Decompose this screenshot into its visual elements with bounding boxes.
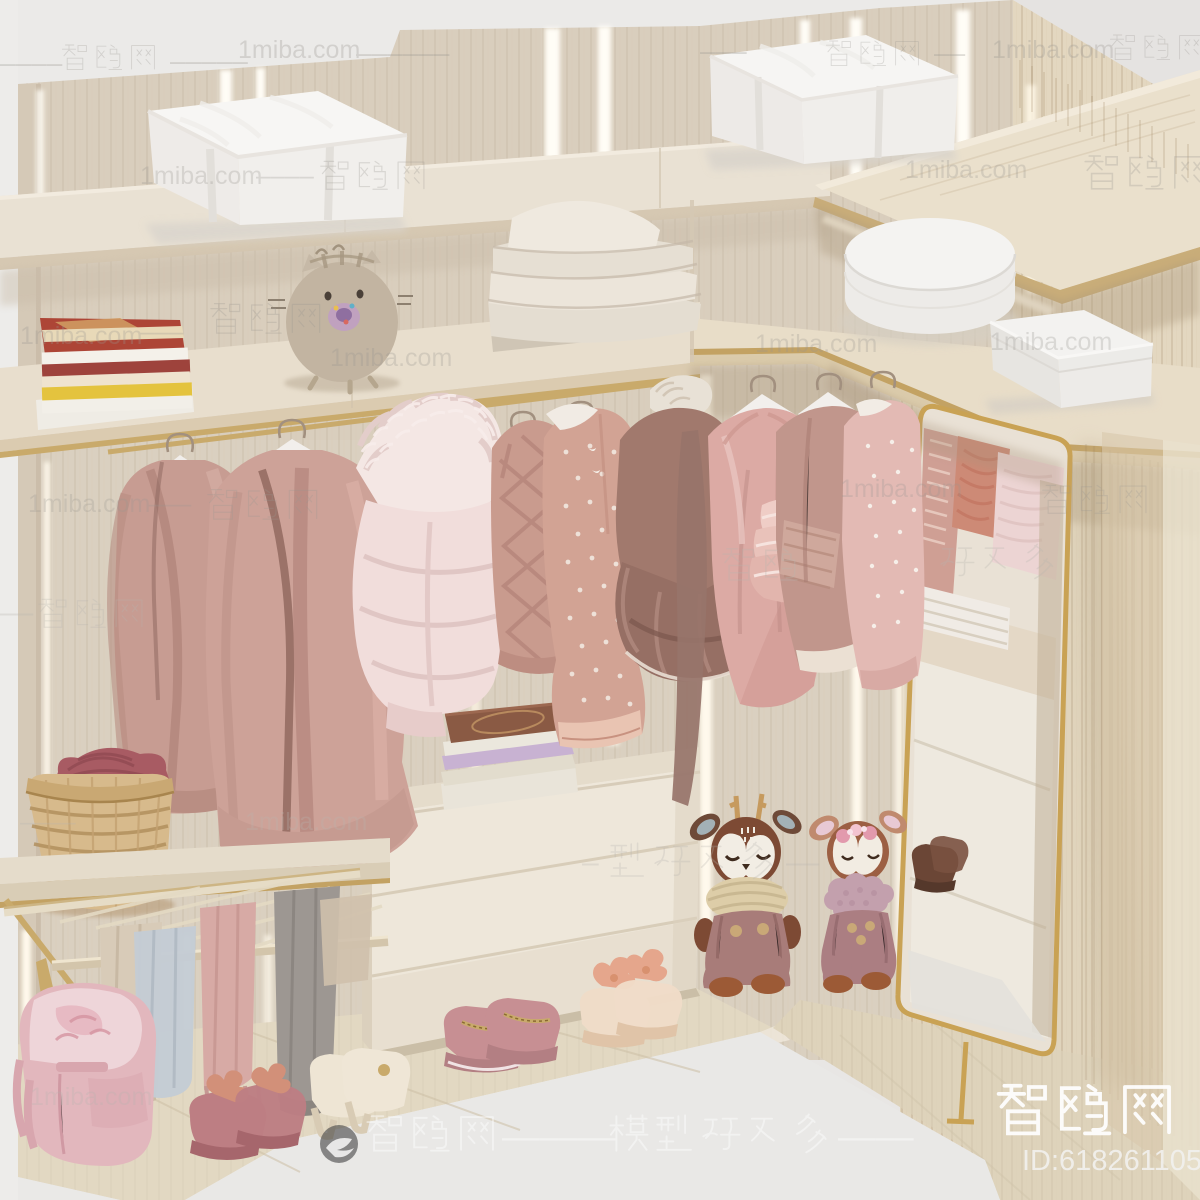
svg-text:1miba.com: 1miba.com [20, 322, 142, 350]
svg-text:1miba.com: 1miba.com [140, 162, 262, 190]
svg-text:–: – [582, 846, 599, 879]
svg-text:1miba.com: 1miba.com [330, 344, 452, 372]
svg-text:–––: ––– [700, 35, 747, 66]
svg-text:1miba.com: 1miba.com [28, 490, 150, 518]
svg-text:–––––: ––––– [170, 45, 248, 76]
svg-text:1miba.com: 1miba.com [755, 330, 877, 358]
svg-text:1miba.com: 1miba.com [30, 1083, 152, 1111]
svg-text:ID:618261105: ID:618261105 [1022, 1145, 1200, 1177]
svg-text:––––: –––– [20, 808, 76, 836]
svg-text:––––––: –––––– [356, 37, 450, 68]
svg-text:1miba.com: 1miba.com [905, 156, 1027, 184]
svg-text:––––––: –––––– [502, 1118, 616, 1156]
svg-text:1miba.com: 1miba.com [990, 328, 1112, 356]
svg-text:1miba.com: 1miba.com [245, 808, 367, 836]
svg-text:––––: –––– [838, 1118, 914, 1156]
svg-text:1miba.com: 1miba.com [238, 36, 360, 64]
svg-text:1miba.com: 1miba.com [992, 36, 1114, 64]
svg-text:––: –– [934, 37, 966, 68]
svg-text:––––: –––– [256, 160, 314, 190]
svg-text:––: –– [0, 596, 34, 629]
svg-text:–––: ––– [148, 488, 192, 518]
svg-text:–––: ––– [140, 316, 184, 346]
svg-text:––: –– [786, 846, 820, 879]
svg-text:––––: –––– [0, 47, 63, 78]
svg-text:1miba.com: 1miba.com [840, 475, 962, 503]
